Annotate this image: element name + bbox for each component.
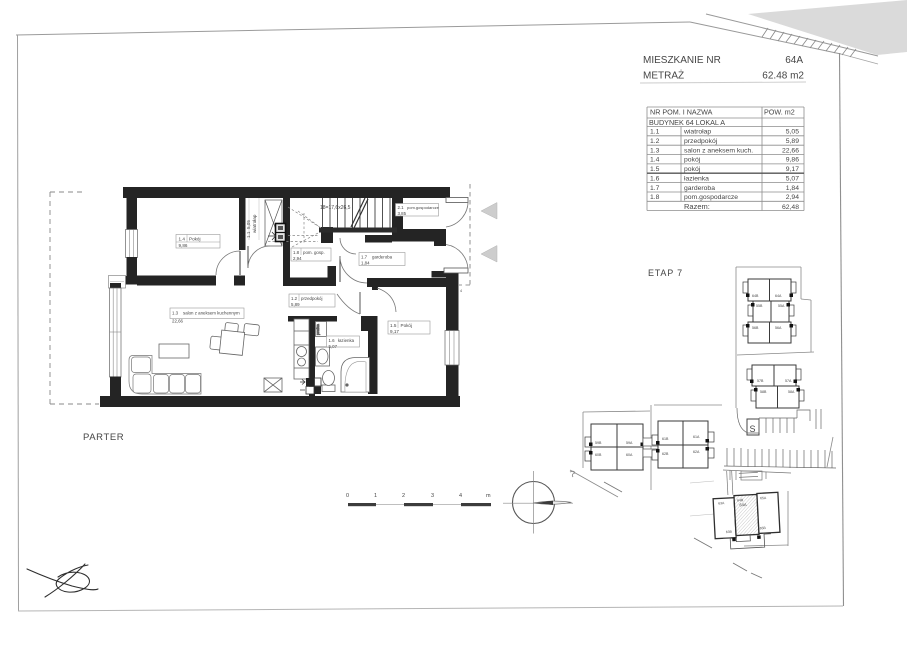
svg-text:1.6: 1.6 [329,338,336,343]
svg-text:63A: 63A [718,501,725,505]
svg-text:62.48 m2: 62.48 m2 [762,71,804,82]
svg-text:salon z aneksem kuchennym: salon z aneksem kuchennym [183,311,240,316]
svg-text:przedpokój: przedpokój [301,296,323,301]
svg-text:garderoba: garderoba [372,255,393,260]
svg-text:2,94: 2,94 [786,194,799,201]
svg-text:57B: 57B [757,379,764,383]
svg-text:1.6: 1.6 [650,175,660,182]
svg-text:64B: 64B [752,294,759,298]
svg-text:62,48: 62,48 [782,204,799,211]
svg-text:łazienka: łazienka [338,338,355,343]
svg-text:3: 3 [431,493,434,499]
svg-text:Pokój: Pokój [189,237,201,242]
svg-text:62A: 62A [693,450,700,454]
svg-text:3,85: 3,85 [398,211,407,216]
svg-text:9,86: 9,86 [786,157,799,164]
svg-text:64A: 64A [775,294,782,298]
svg-text:PARTER: PARTER [83,432,124,443]
svg-text:POW. m2: POW. m2 [764,108,795,117]
svg-text:5,07: 5,07 [329,344,338,349]
svg-text:Pokój: Pokój [401,323,413,328]
svg-text:1,84: 1,84 [786,185,799,192]
svg-text:1.7: 1.7 [361,255,368,260]
svg-text:5,05: 5,05 [786,129,799,136]
svg-text:1.7: 1.7 [650,185,660,192]
svg-text:5,89: 5,89 [291,302,300,307]
svg-text:MIESZKANIE NR: MIESZKANIE NR [643,55,721,66]
svg-text:58B: 58B [760,390,767,394]
svg-text:łazienka: łazienka [684,175,709,182]
svg-text:ETAP 7: ETAP 7 [648,268,683,278]
svg-text:1.4: 1.4 [179,237,186,242]
svg-text:1,84: 1,84 [361,261,370,266]
svg-text:63B: 63B [726,530,733,534]
svg-text:56A: 56A [775,326,782,330]
svg-text:BUDYNEK 64 LOKAL A: BUDYNEK 64 LOKAL A [649,118,725,127]
svg-text:65B: 65B [760,526,767,530]
svg-text:65A: 65A [760,496,767,500]
svg-text:1.1 5,05: 1.1 5,05 [246,220,251,238]
svg-text:2: 2 [402,493,405,499]
svg-text:4: 4 [459,493,462,499]
svg-text:1.3: 1.3 [650,147,660,154]
svg-text:9,86: 9,86 [179,243,188,248]
svg-text:9,17: 9,17 [390,329,399,334]
svg-text:1.3: 1.3 [172,311,179,316]
svg-text:wiatrołap: wiatrołap [252,214,257,233]
svg-text:pokój: pokój [684,157,701,164]
svg-text:przedpokój: przedpokój [684,138,718,145]
svg-text:1.5: 1.5 [650,166,660,173]
svg-text:22,66: 22,66 [782,147,799,154]
svg-text:1.2: 1.2 [291,296,298,301]
svg-text:1.8: 1.8 [650,194,660,201]
svg-text:NR POM. I NAZWA: NR POM. I NAZWA [650,108,713,117]
svg-text:1.5: 1.5 [390,323,397,328]
svg-text:58A: 58A [788,390,795,394]
svg-text:1.8: 1.8 [293,250,300,255]
svg-text:5,07: 5,07 [786,175,799,182]
svg-text:9,17: 9,17 [786,166,799,173]
svg-text:Razem:: Razem: [684,202,710,211]
svg-text:59B: 59B [595,441,602,445]
svg-text:pom.gospodarcze: pom.gospodarcze [684,194,738,201]
svg-text:salon z aneksem kuch.: salon z aneksem kuch. [684,147,753,154]
svg-text:1.4: 1.4 [650,157,660,164]
svg-text:55A: 55A [778,304,785,308]
svg-text:61A: 61A [693,435,700,439]
svg-text:4: 4 [460,289,462,293]
svg-text:2,94: 2,94 [293,256,302,261]
svg-text:m: m [486,493,491,499]
svg-text:55B: 55B [756,304,763,308]
svg-text:1.1: 1.1 [650,129,660,136]
svg-text:60B: 60B [595,453,602,457]
svg-text:59A: 59A [626,441,633,445]
svg-text:64A: 64A [739,502,747,507]
svg-text:22,66: 22,66 [172,319,184,324]
svg-text:garderoba: garderoba [684,185,715,192]
svg-text:5,89: 5,89 [786,138,799,145]
svg-text:64A: 64A [785,55,803,66]
svg-text:pom.gospodarcze: pom.gospodarcze [407,205,440,210]
svg-text:2.1: 2.1 [398,205,405,210]
svg-text:57A: 57A [785,379,792,383]
svg-text:1.2: 1.2 [650,138,660,145]
svg-text:62B: 62B [662,452,669,456]
svg-text:18=17,6x26,5: 18=17,6x26,5 [320,205,351,211]
svg-text:pom. gosp.: pom. gosp. [303,250,325,255]
svg-text:wiatrołap: wiatrołap [683,129,711,136]
svg-text:61B: 61B [662,437,669,441]
svg-text:pralka: pralka [315,323,320,335]
svg-text:S: S [750,424,756,434]
svg-text:60A: 60A [626,453,633,457]
svg-text:pokój: pokój [684,166,701,173]
svg-text:1: 1 [374,493,377,499]
svg-text:METRAŻ: METRAŻ [643,69,684,82]
svg-text:56B: 56B [752,326,759,330]
svg-text:0: 0 [346,493,349,499]
